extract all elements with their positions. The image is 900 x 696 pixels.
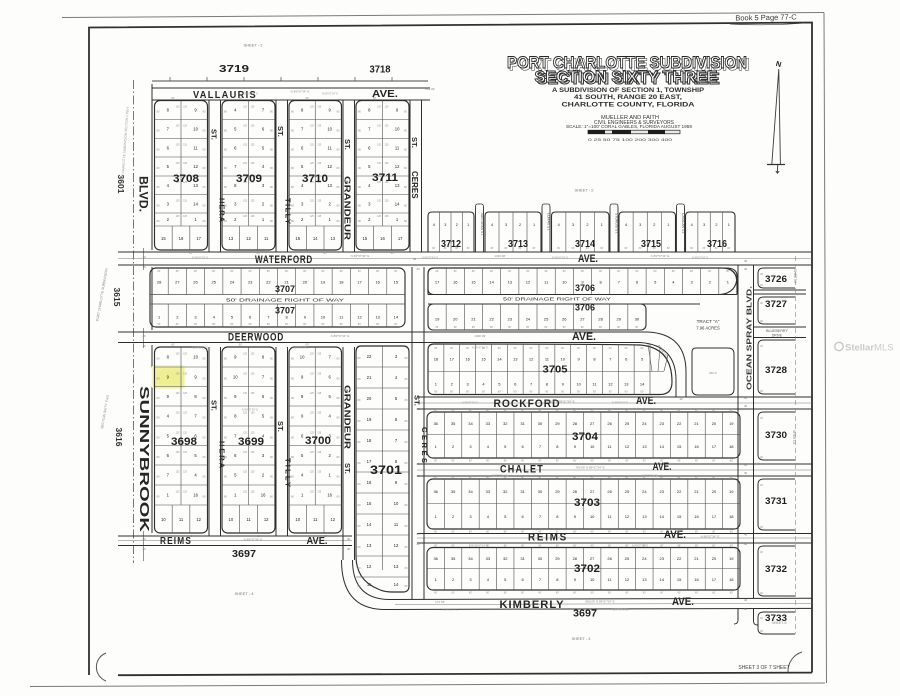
svg-text:3707: 3707 — [275, 306, 295, 317]
svg-text:80': 80' — [730, 592, 734, 595]
svg-text:3732: 3732 — [765, 564, 787, 575]
svg-text:80': 80' — [641, 391, 645, 394]
svg-text:80': 80' — [678, 531, 682, 534]
svg-text:12: 12 — [526, 280, 531, 285]
svg-text:0 25 50 75 100 200: 0 25 50 75 100 200 300 400 — [588, 138, 672, 142]
svg-text:SHEET - 2: SHEET - 2 — [243, 43, 263, 48]
svg-text:12: 12 — [625, 514, 630, 519]
svg-text:80': 80' — [538, 592, 542, 595]
svg-text:80': 80' — [521, 592, 525, 595]
svg-text:40: 40 — [679, 397, 683, 401]
svg-text:80': 80' — [454, 326, 458, 329]
svg-text:80': 80' — [672, 270, 676, 273]
svg-text:24: 24 — [642, 556, 647, 561]
svg-text:15: 15 — [362, 236, 367, 241]
svg-text:40: 40 — [416, 462, 420, 466]
svg-text:16: 16 — [380, 236, 385, 241]
svg-text:14: 14 — [394, 315, 399, 320]
svg-text:60': 60' — [391, 251, 395, 255]
svg-text:19: 19 — [321, 280, 326, 285]
svg-text:80': 80' — [678, 544, 682, 547]
svg-text:80': 80' — [526, 270, 530, 273]
svg-text:40: 40 — [744, 259, 748, 263]
svg-text:18: 18 — [339, 280, 344, 285]
svg-text:80': 80' — [591, 544, 595, 547]
svg-text:60': 60' — [189, 251, 193, 255]
svg-text:80': 80' — [545, 347, 549, 350]
svg-text:80': 80' — [498, 391, 502, 394]
svg-text:80': 80' — [249, 323, 253, 326]
svg-text:15: 15 — [394, 280, 399, 285]
svg-text:27: 27 — [590, 489, 595, 494]
svg-text:19: 19 — [729, 489, 734, 494]
svg-text:2: 2 — [653, 223, 655, 227]
svg-text:N 89°57'34" E: N 89°57'34" E — [242, 408, 258, 412]
svg-text:80': 80' — [556, 544, 560, 547]
svg-text:80': 80' — [434, 460, 438, 463]
svg-text:60': 60' — [239, 343, 243, 347]
svg-text:17: 17 — [398, 236, 403, 241]
svg-text:80': 80' — [708, 270, 712, 273]
svg-text:33: 33 — [486, 556, 491, 561]
svg-text:11: 11 — [264, 236, 269, 241]
svg-text:26: 26 — [607, 556, 612, 561]
svg-text:60': 60' — [189, 534, 193, 538]
svg-text:60': 60' — [306, 96, 310, 100]
svg-text:N 89°57'34" E: N 89°57'34" E — [291, 90, 310, 94]
svg-text:ST.: ST. — [343, 463, 352, 474]
svg-text:21: 21 — [694, 421, 699, 426]
svg-text:3: 3 — [572, 223, 574, 227]
svg-text:15: 15 — [161, 236, 166, 241]
svg-text:80': 80' — [521, 531, 525, 534]
svg-text:23: 23 — [660, 421, 665, 426]
svg-text:14: 14 — [660, 514, 665, 519]
svg-text:40: 40 — [416, 267, 420, 271]
svg-text:22: 22 — [489, 317, 494, 322]
svg-text:80': 80' — [660, 544, 664, 547]
svg-text:80': 80' — [608, 460, 612, 463]
svg-text:3707: 3707 — [275, 284, 295, 295]
svg-text:28: 28 — [157, 280, 162, 285]
svg-text:80': 80' — [660, 531, 664, 534]
svg-text:10: 10 — [228, 517, 233, 522]
svg-text:32: 32 — [503, 421, 508, 426]
svg-text:14: 14 — [193, 201, 198, 206]
svg-text:80': 80' — [521, 460, 525, 463]
svg-text:ST.: ST. — [410, 137, 419, 148]
svg-text:80': 80' — [472, 270, 476, 273]
svg-text:N 89°57'34" E: N 89°57'34" E — [492, 474, 508, 478]
svg-text:19: 19 — [435, 317, 440, 322]
svg-text:80': 80' — [608, 409, 612, 412]
svg-text:14: 14 — [394, 582, 399, 587]
svg-text:18: 18 — [729, 577, 734, 582]
svg-text:11: 11 — [367, 582, 372, 587]
svg-text:80': 80' — [452, 460, 456, 463]
svg-text:40: 40 — [744, 471, 748, 475]
svg-text:80': 80' — [573, 592, 577, 595]
svg-text:1: 1 — [467, 223, 469, 227]
svg-text:80': 80' — [643, 531, 647, 534]
svg-text:27: 27 — [175, 280, 180, 285]
svg-text:StellarMLS: StellarMLS — [845, 343, 894, 354]
svg-text:2: 2 — [519, 223, 521, 227]
svg-text:3709: 3709 — [236, 173, 262, 185]
svg-text:80': 80' — [712, 476, 716, 479]
svg-text:80': 80' — [695, 460, 699, 463]
svg-text:80': 80' — [608, 592, 612, 595]
svg-text:25: 25 — [625, 421, 630, 426]
svg-text:N 89°57'34" E: N 89°57'34" E — [472, 346, 488, 350]
svg-text:20: 20 — [712, 421, 717, 426]
svg-text:80': 80' — [695, 544, 699, 547]
svg-text:80': 80' — [538, 476, 542, 479]
svg-text:80': 80' — [730, 544, 734, 547]
svg-text:AVE.: AVE. — [653, 461, 672, 473]
svg-text:16: 16 — [261, 493, 266, 498]
svg-text:40: 40 — [744, 463, 748, 467]
svg-text:29: 29 — [555, 556, 560, 561]
svg-text:3713: 3713 — [508, 239, 528, 250]
svg-text:40: 40 — [142, 255, 146, 259]
svg-text:60': 60' — [257, 534, 261, 538]
svg-text:80': 80' — [577, 391, 581, 394]
svg-text:N 89°57'34" E: N 89°57'34" E — [612, 401, 628, 405]
svg-text:60': 60' — [324, 534, 328, 538]
svg-text:40: 40 — [142, 547, 146, 551]
svg-text:25: 25 — [625, 556, 630, 561]
svg-text:SHEET - 2: SHEET - 2 — [574, 188, 594, 193]
svg-text:SHEET - 4: SHEET - 4 — [234, 591, 254, 596]
svg-text:80': 80' — [695, 531, 699, 534]
svg-text:22: 22 — [266, 280, 271, 285]
svg-text:80': 80' — [508, 326, 512, 329]
svg-text:80': 80' — [469, 409, 473, 412]
svg-text:3726: 3726 — [765, 274, 787, 285]
svg-text:13: 13 — [375, 315, 380, 320]
svg-text:80': 80' — [466, 391, 470, 394]
svg-text:3705: 3705 — [543, 364, 568, 376]
svg-text:Book 5 Page 77-C: Book 5 Page 77-C — [735, 12, 797, 22]
svg-text:7.96 ACRES: 7.96 ACRES — [696, 326, 720, 331]
svg-text:17: 17 — [196, 236, 201, 241]
svg-text:SUNNYBROOK: SUNNYBROOK — [137, 386, 152, 533]
svg-text:80': 80' — [230, 323, 234, 326]
svg-text:15: 15 — [471, 280, 476, 285]
svg-text:80': 80' — [434, 409, 438, 412]
svg-text:CERES: CERES — [410, 171, 419, 199]
svg-text:18: 18 — [367, 438, 372, 443]
svg-text:80': 80' — [538, 531, 542, 534]
svg-text:21: 21 — [367, 375, 372, 380]
svg-text:80': 80' — [452, 409, 456, 412]
svg-text:N 89°57'34" E: N 89°57'34" E — [612, 608, 628, 612]
svg-text:20: 20 — [712, 556, 717, 561]
svg-text:17: 17 — [357, 280, 362, 285]
svg-text:ST.: ST. — [210, 400, 219, 411]
svg-text:80': 80' — [514, 347, 518, 350]
svg-text:N 89°57'34" E: N 89°57'34" E — [192, 256, 208, 260]
svg-text:80': 80' — [285, 323, 289, 326]
svg-text:40: 40 — [142, 537, 146, 541]
svg-text:250.0': 250.0' — [709, 371, 718, 375]
svg-text:13: 13 — [624, 382, 629, 387]
svg-text:80': 80' — [561, 391, 565, 394]
svg-text:2: 2 — [456, 223, 458, 227]
svg-text:4: 4 — [558, 223, 560, 227]
svg-text:80': 80' — [526, 326, 530, 329]
svg-text:N 89°57'34" E: N 89°57'34" E — [242, 92, 258, 96]
svg-text:80': 80' — [600, 247, 604, 250]
svg-text:1: 1 — [533, 223, 535, 227]
svg-text:80': 80' — [469, 531, 473, 534]
svg-text:60': 60' — [239, 96, 243, 100]
svg-text:3727: 3727 — [765, 299, 787, 310]
svg-text:29: 29 — [555, 421, 560, 426]
svg-text:24: 24 — [642, 489, 647, 494]
svg-text:32: 32 — [503, 556, 508, 561]
svg-text:171.63': 171.63' — [435, 600, 445, 604]
svg-text:80': 80' — [625, 409, 629, 412]
svg-text:17: 17 — [435, 280, 440, 285]
svg-text:80': 80' — [726, 270, 730, 273]
svg-text:21: 21 — [471, 317, 476, 322]
svg-text:22: 22 — [677, 556, 682, 561]
svg-text:LOMAN ST.: LOMAN ST. — [546, 213, 550, 231]
svg-text:80': 80' — [563, 326, 567, 329]
svg-text:80': 80' — [660, 592, 664, 595]
svg-text:80': 80' — [454, 270, 458, 273]
svg-text:33: 33 — [486, 421, 491, 426]
svg-text:769.09' N 89°57'34" E: 769.09' N 89°57'34" E — [545, 400, 574, 404]
svg-text:12: 12 — [625, 444, 630, 449]
svg-text:40: 40 — [744, 598, 748, 602]
svg-text:33: 33 — [486, 489, 491, 494]
svg-text:16: 16 — [465, 357, 470, 362]
svg-text:80': 80' — [730, 460, 734, 463]
svg-text:80': 80' — [452, 544, 456, 547]
svg-text:10: 10 — [321, 315, 326, 320]
svg-text:11: 11 — [395, 145, 400, 150]
svg-text:80': 80' — [591, 531, 595, 534]
svg-text:80': 80' — [434, 592, 438, 595]
svg-text:3698: 3698 — [171, 436, 197, 448]
svg-text:N 89°57'34" E: N 89°57'34" E — [331, 334, 350, 338]
svg-text:24: 24 — [230, 280, 235, 285]
svg-text:50' DRAINAGE RIGHT OF: 50' DRAINAGE RIGHT OF WAY — [226, 298, 344, 303]
svg-text:STURGIS ST.: STURGIS ST. — [614, 213, 618, 234]
svg-text:80': 80' — [608, 476, 612, 479]
svg-text:3697: 3697 — [232, 548, 256, 560]
svg-text:40: 40 — [744, 404, 748, 408]
svg-text:KIMBERLY: KIMBERLY — [500, 599, 565, 611]
svg-text:32: 32 — [503, 489, 508, 494]
svg-text:10: 10 — [590, 577, 595, 582]
svg-text:3616: 3616 — [114, 428, 124, 447]
svg-text:80': 80' — [654, 270, 658, 273]
svg-text:15: 15 — [677, 444, 682, 449]
svg-text:80': 80' — [469, 460, 473, 463]
svg-text:BLVD.: BLVD. — [137, 176, 149, 212]
svg-text:11: 11 — [193, 145, 198, 150]
svg-text:12: 12 — [608, 382, 613, 387]
svg-text:80': 80' — [194, 270, 198, 273]
svg-text:13: 13 — [367, 543, 372, 548]
svg-text:80': 80' — [641, 347, 645, 350]
svg-text:80': 80' — [712, 592, 716, 595]
svg-text:14: 14 — [497, 357, 502, 362]
svg-text:13: 13 — [327, 183, 332, 188]
svg-text:80': 80' — [563, 270, 567, 273]
svg-text:10: 10 — [395, 127, 400, 132]
svg-text:12: 12 — [330, 517, 335, 522]
svg-text:80': 80' — [230, 270, 234, 273]
svg-text:80': 80' — [504, 544, 508, 547]
svg-text:80': 80' — [176, 323, 180, 326]
svg-text:80': 80' — [556, 409, 560, 412]
svg-text:3710: 3710 — [302, 173, 328, 185]
svg-text:14: 14 — [395, 201, 400, 206]
svg-text:80': 80' — [538, 544, 542, 547]
svg-text:N 89°57'34" E: N 89°57'34" E — [632, 544, 648, 548]
svg-text:80': 80' — [690, 247, 694, 250]
svg-text:2: 2 — [715, 223, 717, 227]
svg-text:80': 80' — [450, 391, 454, 394]
svg-text:2: 2 — [586, 223, 588, 227]
svg-text:26: 26 — [607, 489, 612, 494]
svg-text:3703: 3703 — [574, 497, 600, 509]
svg-text:1: 1 — [728, 223, 730, 227]
svg-text:11: 11 — [328, 145, 333, 150]
svg-text:80': 80' — [530, 347, 534, 350]
svg-text:15: 15 — [481, 357, 486, 362]
svg-text:3728: 3728 — [765, 365, 787, 376]
svg-text:AVE.: AVE. — [672, 596, 694, 608]
svg-text:80': 80' — [635, 270, 639, 273]
svg-text:22: 22 — [367, 354, 372, 359]
svg-text:N 89°57'34" E: N 89°57'34" E — [442, 608, 458, 612]
svg-text:3700: 3700 — [305, 435, 331, 447]
svg-text:1320.96': 1320.96' — [494, 254, 506, 258]
svg-text:80': 80' — [486, 476, 490, 479]
svg-text:36: 36 — [433, 489, 438, 494]
svg-text:N 89°57'34" E: N 89°57'34" E — [322, 92, 338, 96]
svg-text:25: 25 — [544, 317, 549, 322]
svg-text:80': 80' — [538, 409, 542, 412]
svg-text:22: 22 — [677, 489, 682, 494]
svg-text:20: 20 — [712, 489, 717, 494]
svg-text:80': 80' — [467, 247, 471, 250]
svg-text:80': 80' — [712, 531, 716, 534]
svg-text:40: 40 — [416, 474, 420, 478]
svg-text:80': 80' — [212, 270, 216, 273]
svg-text:21: 21 — [694, 556, 699, 561]
svg-text:80': 80' — [635, 326, 639, 329]
svg-text:80': 80' — [712, 460, 716, 463]
svg-text:80': 80' — [434, 476, 438, 479]
svg-text:80': 80' — [573, 476, 577, 479]
svg-text:SHEET - 4: SHEET - 4 — [571, 636, 591, 641]
svg-text:SECTION SIXTY THREE: SECTION SIXTY THREE — [535, 69, 718, 86]
svg-text:80': 80' — [340, 323, 344, 326]
svg-text:3731: 3731 — [765, 496, 788, 507]
svg-text:26: 26 — [562, 317, 567, 322]
svg-text:13: 13 — [513, 357, 518, 362]
svg-text:40: 40 — [142, 265, 146, 269]
svg-text:3718: 3718 — [370, 64, 391, 76]
svg-text:80': 80' — [321, 323, 325, 326]
svg-text:80': 80' — [486, 531, 490, 534]
svg-text:SHEET-5: SHEET-5 — [793, 269, 797, 283]
svg-text:3: 3 — [444, 223, 446, 227]
svg-text:16: 16 — [193, 493, 198, 498]
svg-text:80': 80' — [545, 270, 549, 273]
svg-text:14: 14 — [660, 577, 665, 582]
svg-text:16: 16 — [694, 514, 699, 519]
svg-text:N 89°57'34" E: N 89°57'34" E — [244, 538, 263, 542]
svg-text:80': 80' — [158, 323, 162, 326]
svg-text:80': 80' — [530, 391, 534, 394]
svg-text:80': 80' — [452, 531, 456, 534]
svg-text:N 89°57'34" E: N 89°57'34" E — [472, 544, 488, 548]
svg-text:17: 17 — [712, 444, 717, 449]
svg-text:28: 28 — [598, 317, 603, 322]
svg-text:14: 14 — [640, 382, 645, 387]
svg-text:DEERWOOD: DEERWOOD — [228, 332, 284, 344]
svg-text:80': 80' — [695, 409, 699, 412]
svg-text:80': 80' — [556, 592, 560, 595]
svg-text:80': 80' — [504, 409, 508, 412]
svg-text:3715: 3715 — [641, 239, 661, 250]
svg-text:34: 34 — [468, 556, 473, 561]
svg-text:80': 80' — [591, 476, 595, 479]
svg-text:80': 80' — [158, 270, 162, 273]
svg-text:80': 80' — [521, 544, 525, 547]
svg-text:26: 26 — [193, 280, 198, 285]
svg-text:31: 31 — [520, 489, 525, 494]
svg-text:80': 80' — [625, 347, 629, 350]
svg-text:10: 10 — [295, 517, 300, 522]
svg-text:17: 17 — [712, 514, 717, 519]
svg-text:19: 19 — [729, 556, 734, 561]
svg-text:80': 80' — [303, 323, 307, 326]
svg-text:10: 10 — [590, 444, 595, 449]
svg-text:30: 30 — [635, 317, 640, 322]
svg-text:15: 15 — [677, 577, 682, 582]
svg-text:80': 80' — [608, 544, 612, 547]
svg-text:29: 29 — [617, 317, 622, 322]
svg-text:AVE.: AVE. — [664, 529, 686, 541]
svg-text:80': 80' — [593, 391, 597, 394]
svg-text:27: 27 — [590, 556, 595, 561]
svg-text:40: 40 — [744, 396, 748, 400]
svg-text:80': 80' — [482, 391, 486, 394]
svg-text:24: 24 — [526, 317, 531, 322]
svg-text:80': 80' — [340, 270, 344, 273]
svg-text:20: 20 — [453, 317, 458, 322]
svg-text:3699: 3699 — [238, 436, 264, 448]
svg-text:34: 34 — [468, 489, 473, 494]
svg-text:80': 80' — [490, 247, 494, 250]
svg-text:N 89°57'34" E: N 89°57'34" E — [351, 254, 370, 258]
svg-text:80': 80' — [486, 460, 490, 463]
svg-text:1: 1 — [601, 223, 603, 227]
svg-text:80': 80' — [545, 391, 549, 394]
svg-text:80': 80' — [643, 460, 647, 463]
svg-text:80': 80' — [625, 391, 629, 394]
svg-text:3708: 3708 — [173, 173, 199, 185]
